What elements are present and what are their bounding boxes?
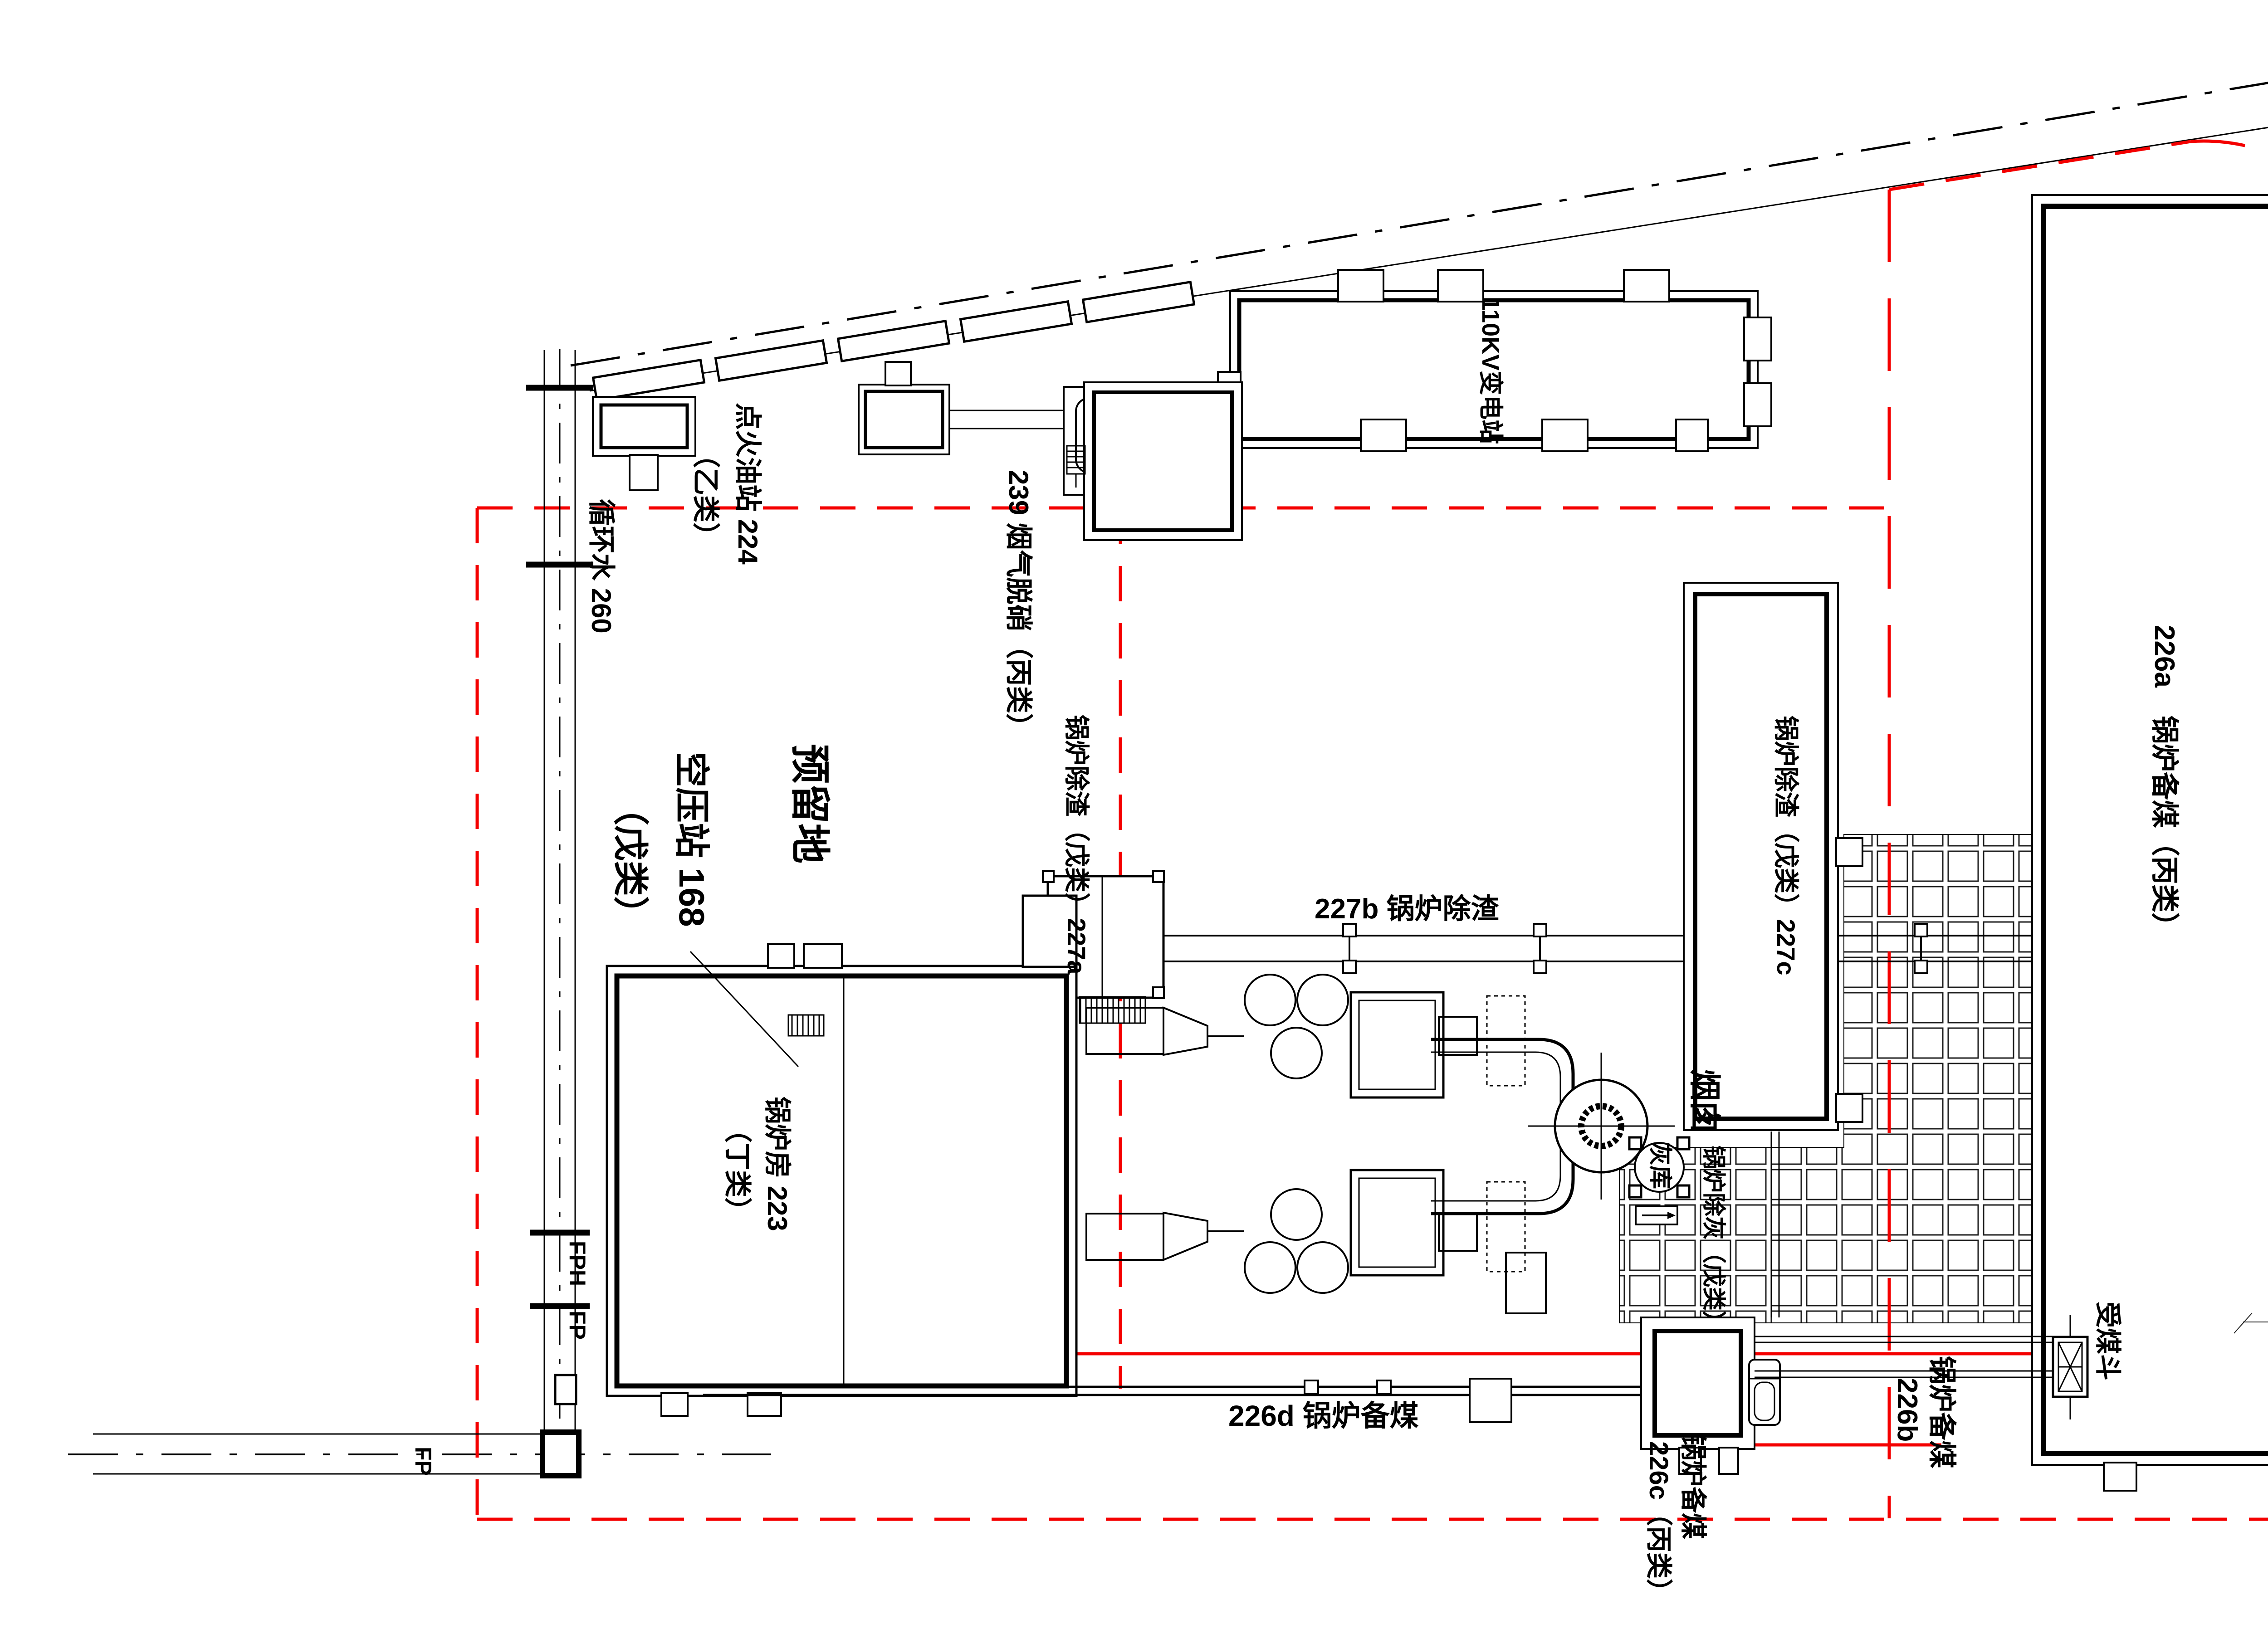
label-226b-coal-l1: 锅炉备煤	[1927, 1356, 1955, 1468]
label-air-compressor-station: 空压站 168	[674, 752, 709, 927]
label-226b-coal-l2: 226b	[1893, 1378, 1921, 1442]
label-227b-slag: 227b 锅炉除渣	[1315, 895, 1499, 923]
label-ash-silo: 灰库	[1648, 1142, 1672, 1189]
label-226c-coal-l1: 锅炉备煤	[1680, 1434, 1706, 1539]
label-110kv-substation: 110KV变电站	[1478, 297, 1503, 444]
label-marker-fph: FPH	[566, 1241, 589, 1286]
label-227a-slag: 锅炉除渣（戊类）227a	[1064, 715, 1089, 975]
label-239-denitration: 239 烟气脱硝（丙类）	[1005, 470, 1032, 741]
label-227c-slag: 锅炉除渣（戊类）227c	[1773, 716, 1799, 975]
label-226a-coal-storage: 226a 锅炉备煤（丙类）	[2150, 625, 2178, 941]
label-circulating-water: 循环水 260	[587, 499, 615, 634]
label-marker-fp-bottom: FP	[412, 1447, 435, 1476]
label-boiler-house: 锅炉房 223	[763, 1097, 791, 1231]
west-road	[93, 349, 593, 1476]
label-ash-removal: 锅炉除灰（戊类）	[1701, 1146, 1725, 1334]
label-ignition-oil-station: 点火油站 224	[734, 403, 761, 565]
label-boiler-house-class: （丁类）	[723, 1116, 751, 1224]
label-reserved-land: 预留地	[790, 744, 830, 863]
boiler-equipment-trains	[1086, 975, 1573, 1313]
site-plan-drawing: 110KV变电站 226a 锅炉备煤（丙类） 预留地 空压站 168 （戊类） …	[0, 0, 2268, 1629]
label-226c-coal-l2: 226c（丙类）	[1645, 1441, 1672, 1605]
label-air-compressor-class: （戊类）	[613, 790, 648, 932]
label-chimney: 烟囱	[1689, 1069, 1721, 1133]
label-coal-hopper: 受煤斗	[2094, 1302, 2121, 1380]
label-ignition-oil-class: （乙类）	[692, 441, 719, 550]
label-marker-fp-mid: FP	[566, 1311, 589, 1340]
building-223-boiler-house	[607, 896, 1076, 1416]
label-226d-coal-conveyor: 226d 锅炉备煤	[1228, 1401, 1419, 1430]
